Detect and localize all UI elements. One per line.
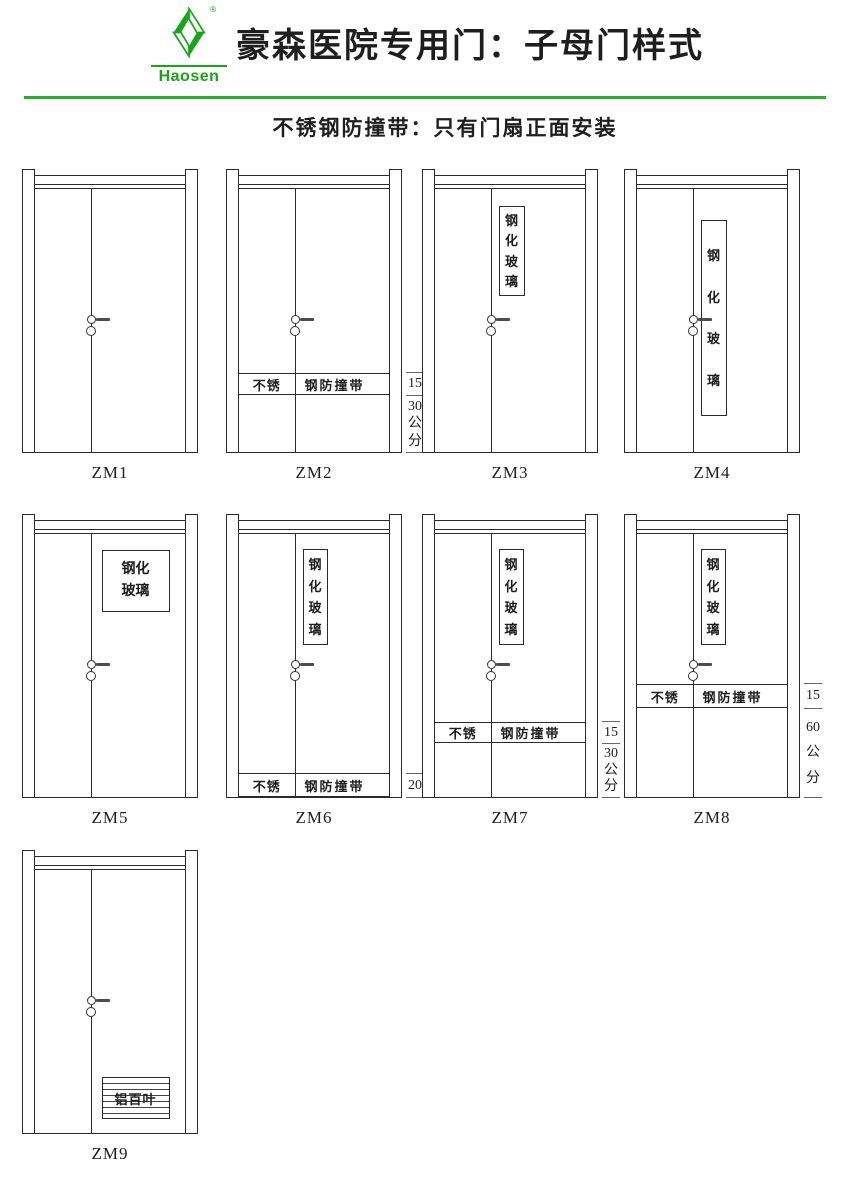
bumper-strip-label-right: 钢防撞带 [693, 687, 788, 706]
door-drawing-zm7: 钢化玻璃 不锈 钢防撞带 15 30公分 [422, 514, 598, 798]
door-frame-top-rail [34, 520, 186, 530]
page-subtitle: 不锈钢防撞带：只有门扇正面安装 [0, 112, 850, 142]
handle-lever [300, 663, 314, 666]
bumper-strip-label-left: 不锈 [435, 723, 491, 742]
handle-lever [300, 318, 314, 321]
door-label: ZM8 [624, 808, 800, 828]
door-leaves: 铝百叶 [34, 869, 186, 1134]
door-handle [487, 315, 517, 341]
door-label: ZM4 [624, 463, 800, 483]
handle-knob [689, 660, 698, 669]
door-frame-post-right [787, 514, 800, 798]
door-drawing-zm5: 钢化玻璃 [22, 514, 198, 798]
handle-lever [496, 318, 510, 321]
door-drawing-zm3: 钢化玻璃 [422, 169, 598, 453]
door-leaves: 钢化玻璃 不锈 钢防撞带 [434, 533, 586, 798]
door-drawing-zm4: 钢化玻璃 [624, 169, 800, 453]
door-handle [689, 315, 719, 341]
door-drawing-zm8: 钢化玻璃 不锈 钢防撞带 15 60公分 [624, 514, 800, 798]
door-leaves: 不锈 钢防撞带 [238, 188, 390, 453]
door-drawing-zm9: 铝百叶 [22, 850, 198, 1134]
glass-panel: 钢化玻璃 [499, 549, 524, 645]
door-handle [487, 660, 517, 686]
door-label: ZM5 [22, 808, 198, 828]
louver-panel: 铝百叶 [102, 1077, 170, 1119]
handle-knob [689, 315, 698, 324]
dimension-band-number: 15 [408, 377, 422, 391]
handle-knob [87, 996, 96, 1005]
door-frame-post-right [185, 850, 198, 1134]
door-label: ZM9 [22, 1144, 198, 1164]
door-handle [87, 315, 117, 341]
glass-panel: 钢化玻璃 [701, 549, 726, 645]
handle-lever [496, 663, 510, 666]
door-drawing-zm6: 钢化玻璃 不锈 钢防撞带 20 [226, 514, 402, 798]
door-frame-post-right [585, 514, 598, 798]
dimension-band-number: 15 [604, 726, 618, 740]
door-figure-zm9: 铝百叶 ZM9 [22, 850, 198, 1164]
bumper-strip-label-left: 不锈 [239, 375, 295, 394]
handle-lock [86, 326, 96, 336]
door-figure-zm5: 钢化玻璃 ZM5 [22, 514, 198, 828]
glass-panel: 钢化玻璃 [303, 549, 328, 645]
handle-lock [86, 671, 96, 681]
door-leaves [34, 188, 186, 453]
door-row-3: 铝百叶 ZM9 [0, 850, 850, 1164]
bumper-strip-label-left: 不锈 [637, 687, 693, 706]
dimension-band-number: 15 [806, 689, 820, 703]
bumper-strip: 不锈 钢防撞带 [239, 373, 389, 395]
louver-panel-label: 铝百叶 [114, 1089, 156, 1108]
dimension-tick [804, 797, 822, 798]
door-leaves: 钢化玻璃 不锈 钢防撞带 [636, 533, 788, 798]
handle-lever [96, 999, 110, 1002]
bumper-strip-label-right: 钢防撞带 [491, 723, 586, 742]
glass-panel-label: 钢化玻璃 [119, 559, 151, 604]
door-frame-top-rail [434, 520, 586, 530]
dimension-band-value: 15 [804, 684, 838, 708]
door-row-2: 钢化玻璃 ZM5 钢化玻璃 不锈 钢防撞带 [0, 514, 850, 828]
door-label: ZM7 [422, 808, 598, 828]
bumper-strip-label-right: 钢防撞带 [295, 375, 390, 394]
door-drawing-zm2: 不锈 钢防撞带 15 30公分 [226, 169, 402, 453]
registered-trademark-mark: ® [210, 5, 216, 14]
handle-knob [291, 660, 300, 669]
handle-lock [290, 671, 300, 681]
handle-lock [86, 1007, 96, 1017]
door-frame-post-right [185, 514, 198, 798]
door-label: ZM3 [422, 463, 598, 483]
door-frame-top-rail [34, 175, 186, 185]
door-leaves: 钢化玻璃 [434, 188, 586, 453]
bumper-strip-label-left: 不锈 [239, 776, 295, 795]
door-frame-top-rail [636, 175, 788, 185]
handle-knob [87, 315, 96, 324]
door-figure-zm6: 钢化玻璃 不锈 钢防撞带 20 ZM6 [226, 514, 402, 828]
glass-panel: 钢化玻璃 [499, 206, 525, 296]
door-frame-post-right [585, 169, 598, 453]
door-leaves: 钢化玻璃 不锈 钢防撞带 [238, 533, 390, 798]
handle-knob [487, 660, 496, 669]
door-figure-zm7: 钢化玻璃 不锈 钢防撞带 15 30公分 ZM7 [422, 514, 598, 828]
bumper-strip: 不锈 钢防撞带 [637, 684, 787, 708]
door-frame-post-right [185, 169, 198, 453]
bumper-strip: 不锈 钢防撞带 [239, 773, 389, 797]
handle-lever [96, 663, 110, 666]
dimension-offset-value: 60公分 [804, 709, 838, 797]
handle-knob [87, 660, 96, 669]
handle-lock [688, 326, 698, 336]
handle-lock [290, 326, 300, 336]
dimension-tick [602, 797, 620, 798]
door-frame-post-right [389, 169, 402, 453]
door-handle [291, 660, 321, 686]
brand-name: Haosen [150, 68, 228, 86]
handle-lock [486, 326, 496, 336]
door-frame-post-right [787, 169, 800, 453]
handle-lever [96, 318, 110, 321]
door-row-1: ZM1 不锈 钢防撞带 15 [0, 169, 850, 483]
bumper-strip-label-right: 钢防撞带 [295, 776, 390, 795]
bumper-strip: 不锈 钢防撞带 [435, 722, 585, 743]
door-frame-top-rail [636, 520, 788, 530]
door-frame-top-rail [238, 520, 390, 530]
door-frame-top-rail [434, 175, 586, 185]
door-frame-post-right [389, 514, 402, 798]
header-divider-rule [24, 96, 826, 99]
door-figure-zm4: 钢化玻璃 ZM4 [624, 169, 800, 483]
handle-lock [486, 671, 496, 681]
door-figure-zm8: 钢化玻璃 不锈 钢防撞带 15 60公分 ZM8 [624, 514, 800, 828]
door-label: ZM1 [22, 463, 198, 483]
handle-lock [688, 671, 698, 681]
door-figure-zm1: ZM1 [22, 169, 198, 483]
handle-knob [487, 315, 496, 324]
door-frame-top-rail [238, 175, 390, 185]
handle-lever [698, 663, 712, 666]
door-figure-zm2: 不锈 钢防撞带 15 30公分 ZM2 [226, 169, 402, 483]
door-handle [291, 315, 321, 341]
handle-lever [698, 318, 712, 321]
door-leaves: 钢化玻璃 [34, 533, 186, 798]
door-handle [689, 660, 719, 686]
door-frame-top-rail [34, 856, 186, 866]
door-handle [87, 996, 117, 1022]
door-drawing-zm1 [22, 169, 198, 453]
door-handle [87, 660, 117, 686]
page-title: 豪森医院专用门：子母门样式 [90, 18, 850, 67]
page-header: ® Haosen 豪森医院专用门：子母门样式 [0, 0, 850, 96]
door-label: ZM6 [226, 808, 402, 828]
door-figure-zm3: 钢化玻璃 ZM3 [422, 169, 598, 483]
handle-knob [291, 315, 300, 324]
door-label: ZM2 [226, 463, 402, 483]
door-leaves: 钢化玻璃 [636, 188, 788, 453]
dimension-annotation: 15 60公分 [804, 683, 838, 798]
glass-panel: 钢化玻璃 [102, 550, 170, 612]
dimension-band-number: 20 [408, 779, 422, 793]
